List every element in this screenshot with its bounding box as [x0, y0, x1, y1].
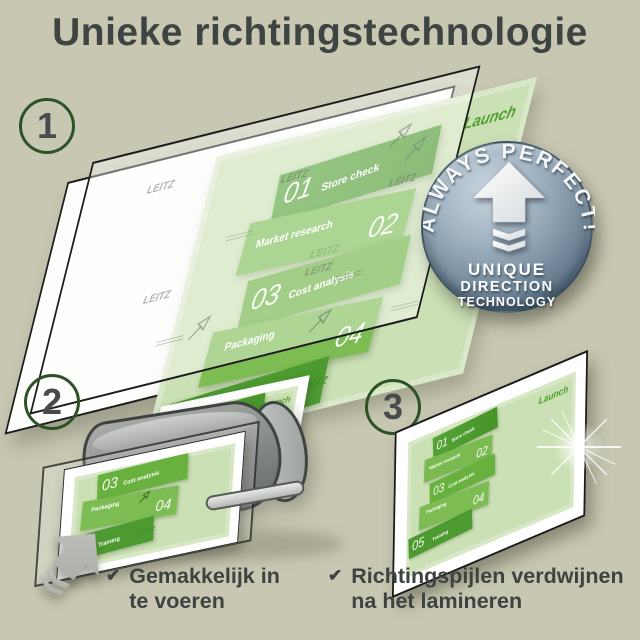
always-perfect-badge: ALWAYS PERFECT! UNIQUE DIRECTION TECHNOL… — [421, 141, 593, 313]
direction-arrow-outline-icon — [384, 118, 416, 153]
fine-print-lines — [155, 335, 184, 348]
checklist-line: te voeren — [129, 589, 225, 613]
checklist-line: Richtingspijlen verdwijnen — [351, 564, 623, 588]
step1-number-badge: 1 — [19, 98, 75, 154]
pouch-watermark: LEITZ — [387, 172, 417, 191]
checklist-line: Gemakkelijk in — [129, 564, 280, 588]
instruction-poster: Unieke richtingstechnologie 01 Store che… — [0, 0, 640, 640]
direction-arrow-outline-icon — [183, 311, 215, 346]
pouch-watermark: LEITZ — [146, 178, 176, 197]
fine-print-lines — [333, 270, 362, 283]
check-icon: ✔ — [106, 566, 120, 615]
check-icon: ✔ — [328, 566, 342, 615]
badge-caption: UNIQUE DIRECTION TECHNOLOGY — [423, 260, 591, 309]
checklist-item-arrows-disappear: ✔ Richtingspijlen verdwijnen na het lami… — [328, 564, 624, 615]
pouch-watermark: LEITZ — [303, 261, 333, 280]
direction-arrow-icon — [470, 160, 548, 258]
pouch-watermark: LEITZ — [279, 168, 309, 187]
shine-sparkle — [536, 404, 622, 490]
pouch-watermark: LEITZ — [142, 289, 172, 308]
checklist-line: na het lamineren — [351, 589, 522, 613]
step2-number-badge: 2 — [24, 374, 80, 430]
page-title: Unieke richtingstechnologie — [0, 11, 640, 55]
checklist-item-easy-feed: ✔ Gemakkelijk in te voeren — [106, 564, 280, 615]
